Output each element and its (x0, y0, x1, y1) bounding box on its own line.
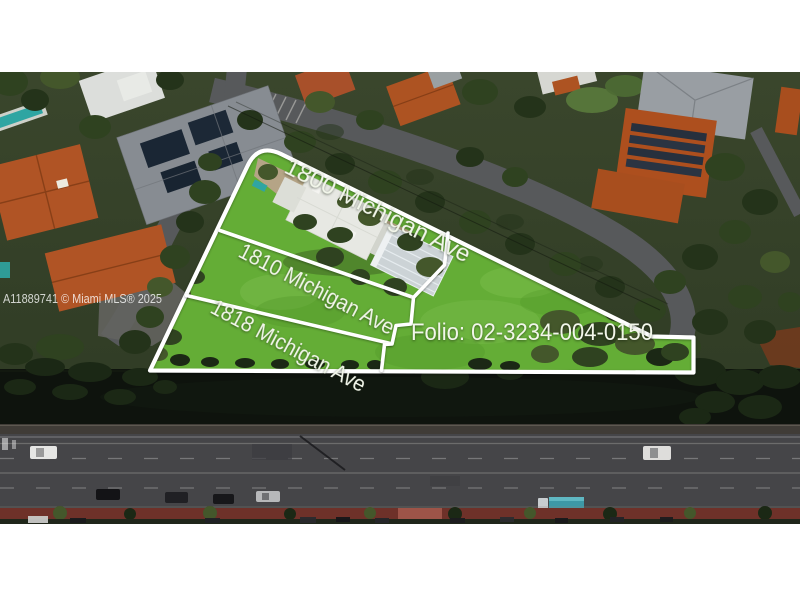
aerial-photo-canvas: 1800 Michigan Ave 1810 Michigan Ave 1818… (0, 72, 800, 524)
car-dark-3 (213, 494, 234, 504)
small-pool (0, 262, 10, 278)
sidewalk-strip (0, 506, 800, 524)
red-crosswalk (398, 508, 442, 519)
mls-watermark: A11889741 © Miami MLS® 2025 (3, 291, 162, 306)
listing-photo-frame: 1800 Michigan Ave 1810 Michigan Ave 1818… (0, 0, 800, 600)
car-silver (256, 491, 280, 502)
car-dark-1 (96, 489, 120, 500)
car-white-right (643, 446, 671, 460)
road-area (0, 424, 800, 512)
car-dark-2 (165, 492, 188, 503)
aerial-photo: 1800 Michigan Ave 1810 Michigan Ave 1818… (0, 72, 800, 524)
folio-label: Folio: 02-3234-004-0150 (411, 319, 653, 346)
car-white-left (30, 446, 57, 459)
